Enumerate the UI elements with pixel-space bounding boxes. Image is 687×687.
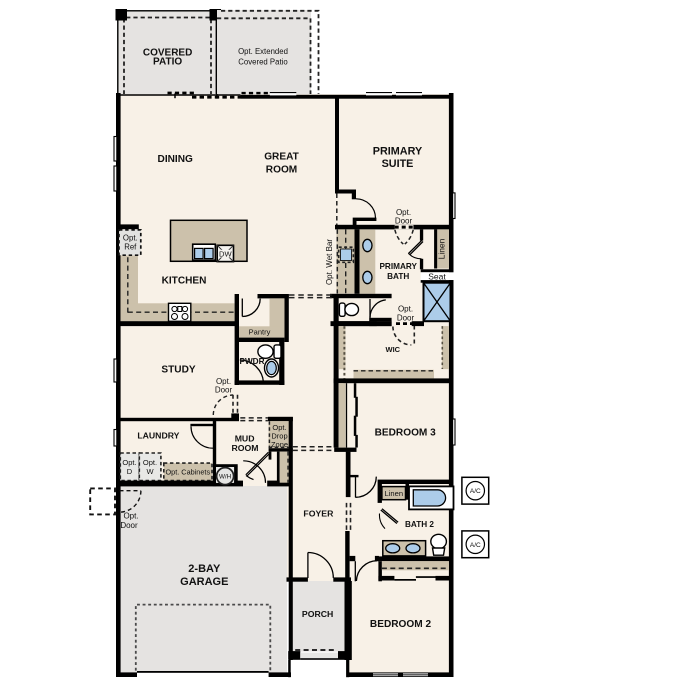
svg-text:BEDROOM 3: BEDROOM 3 [375, 428, 437, 439]
svg-text:Linen: Linen [385, 489, 404, 498]
svg-text:DINING: DINING [158, 154, 193, 165]
svg-text:PATIO: PATIO [153, 57, 182, 68]
svg-text:Ref: Ref [124, 243, 137, 252]
svg-text:Door: Door [395, 217, 413, 226]
svg-text:Opt.: Opt. [123, 234, 138, 243]
svg-text:Door: Door [397, 313, 415, 322]
svg-text:BATH 2: BATH 2 [405, 520, 434, 529]
svg-text:Seat: Seat [428, 272, 446, 282]
svg-text:Opt.: Opt. [123, 512, 138, 521]
svg-text:2-BAY: 2-BAY [188, 563, 221, 575]
svg-text:GARAGE: GARAGE [180, 576, 228, 588]
svg-text:Zone: Zone [271, 440, 288, 449]
svg-text:Door: Door [120, 521, 138, 530]
svg-text:GREAT: GREAT [264, 151, 299, 162]
svg-text:Opt.: Opt. [122, 458, 136, 467]
svg-text:Opt. Wet Bar: Opt. Wet Bar [325, 239, 334, 285]
svg-text:DW: DW [219, 250, 232, 259]
svg-text:PRIMARY: PRIMARY [373, 146, 423, 158]
svg-text:WIC: WIC [386, 345, 401, 354]
svg-text:Opt.: Opt. [143, 458, 157, 467]
svg-text:A/C: A/C [470, 488, 481, 495]
svg-text:PORCH: PORCH [302, 609, 333, 619]
svg-text:A/C: A/C [470, 542, 481, 549]
svg-text:ROOM: ROOM [266, 164, 297, 175]
svg-text:STUDY: STUDY [161, 364, 195, 375]
svg-text:Opt. Cabinets: Opt. Cabinets [165, 468, 210, 477]
svg-text:KITCHEN: KITCHEN [162, 276, 207, 287]
svg-text:PWDR: PWDR [239, 357, 264, 366]
svg-text:BATH: BATH [387, 272, 409, 281]
svg-text:W/H: W/H [219, 474, 232, 481]
svg-text:Linen: Linen [437, 238, 447, 259]
svg-text:BEDROOM 2: BEDROOM 2 [370, 619, 432, 630]
svg-text:W: W [146, 467, 154, 476]
svg-text:D: D [127, 467, 133, 476]
svg-text:Pantry: Pantry [249, 328, 271, 337]
svg-text:LAUNDRY: LAUNDRY [137, 430, 179, 440]
svg-text:SUITE: SUITE [382, 158, 414, 170]
svg-text:FOYER: FOYER [303, 509, 334, 519]
svg-text:Opt. Extended: Opt. Extended [238, 47, 288, 56]
svg-text:ROOM: ROOM [231, 443, 258, 453]
svg-text:PRIMARY: PRIMARY [379, 262, 417, 271]
svg-text:Door: Door [215, 386, 233, 395]
svg-text:Covered Patio: Covered Patio [238, 58, 288, 67]
svg-text:MUD: MUD [235, 433, 255, 443]
svg-text:Opt.: Opt. [398, 305, 413, 314]
